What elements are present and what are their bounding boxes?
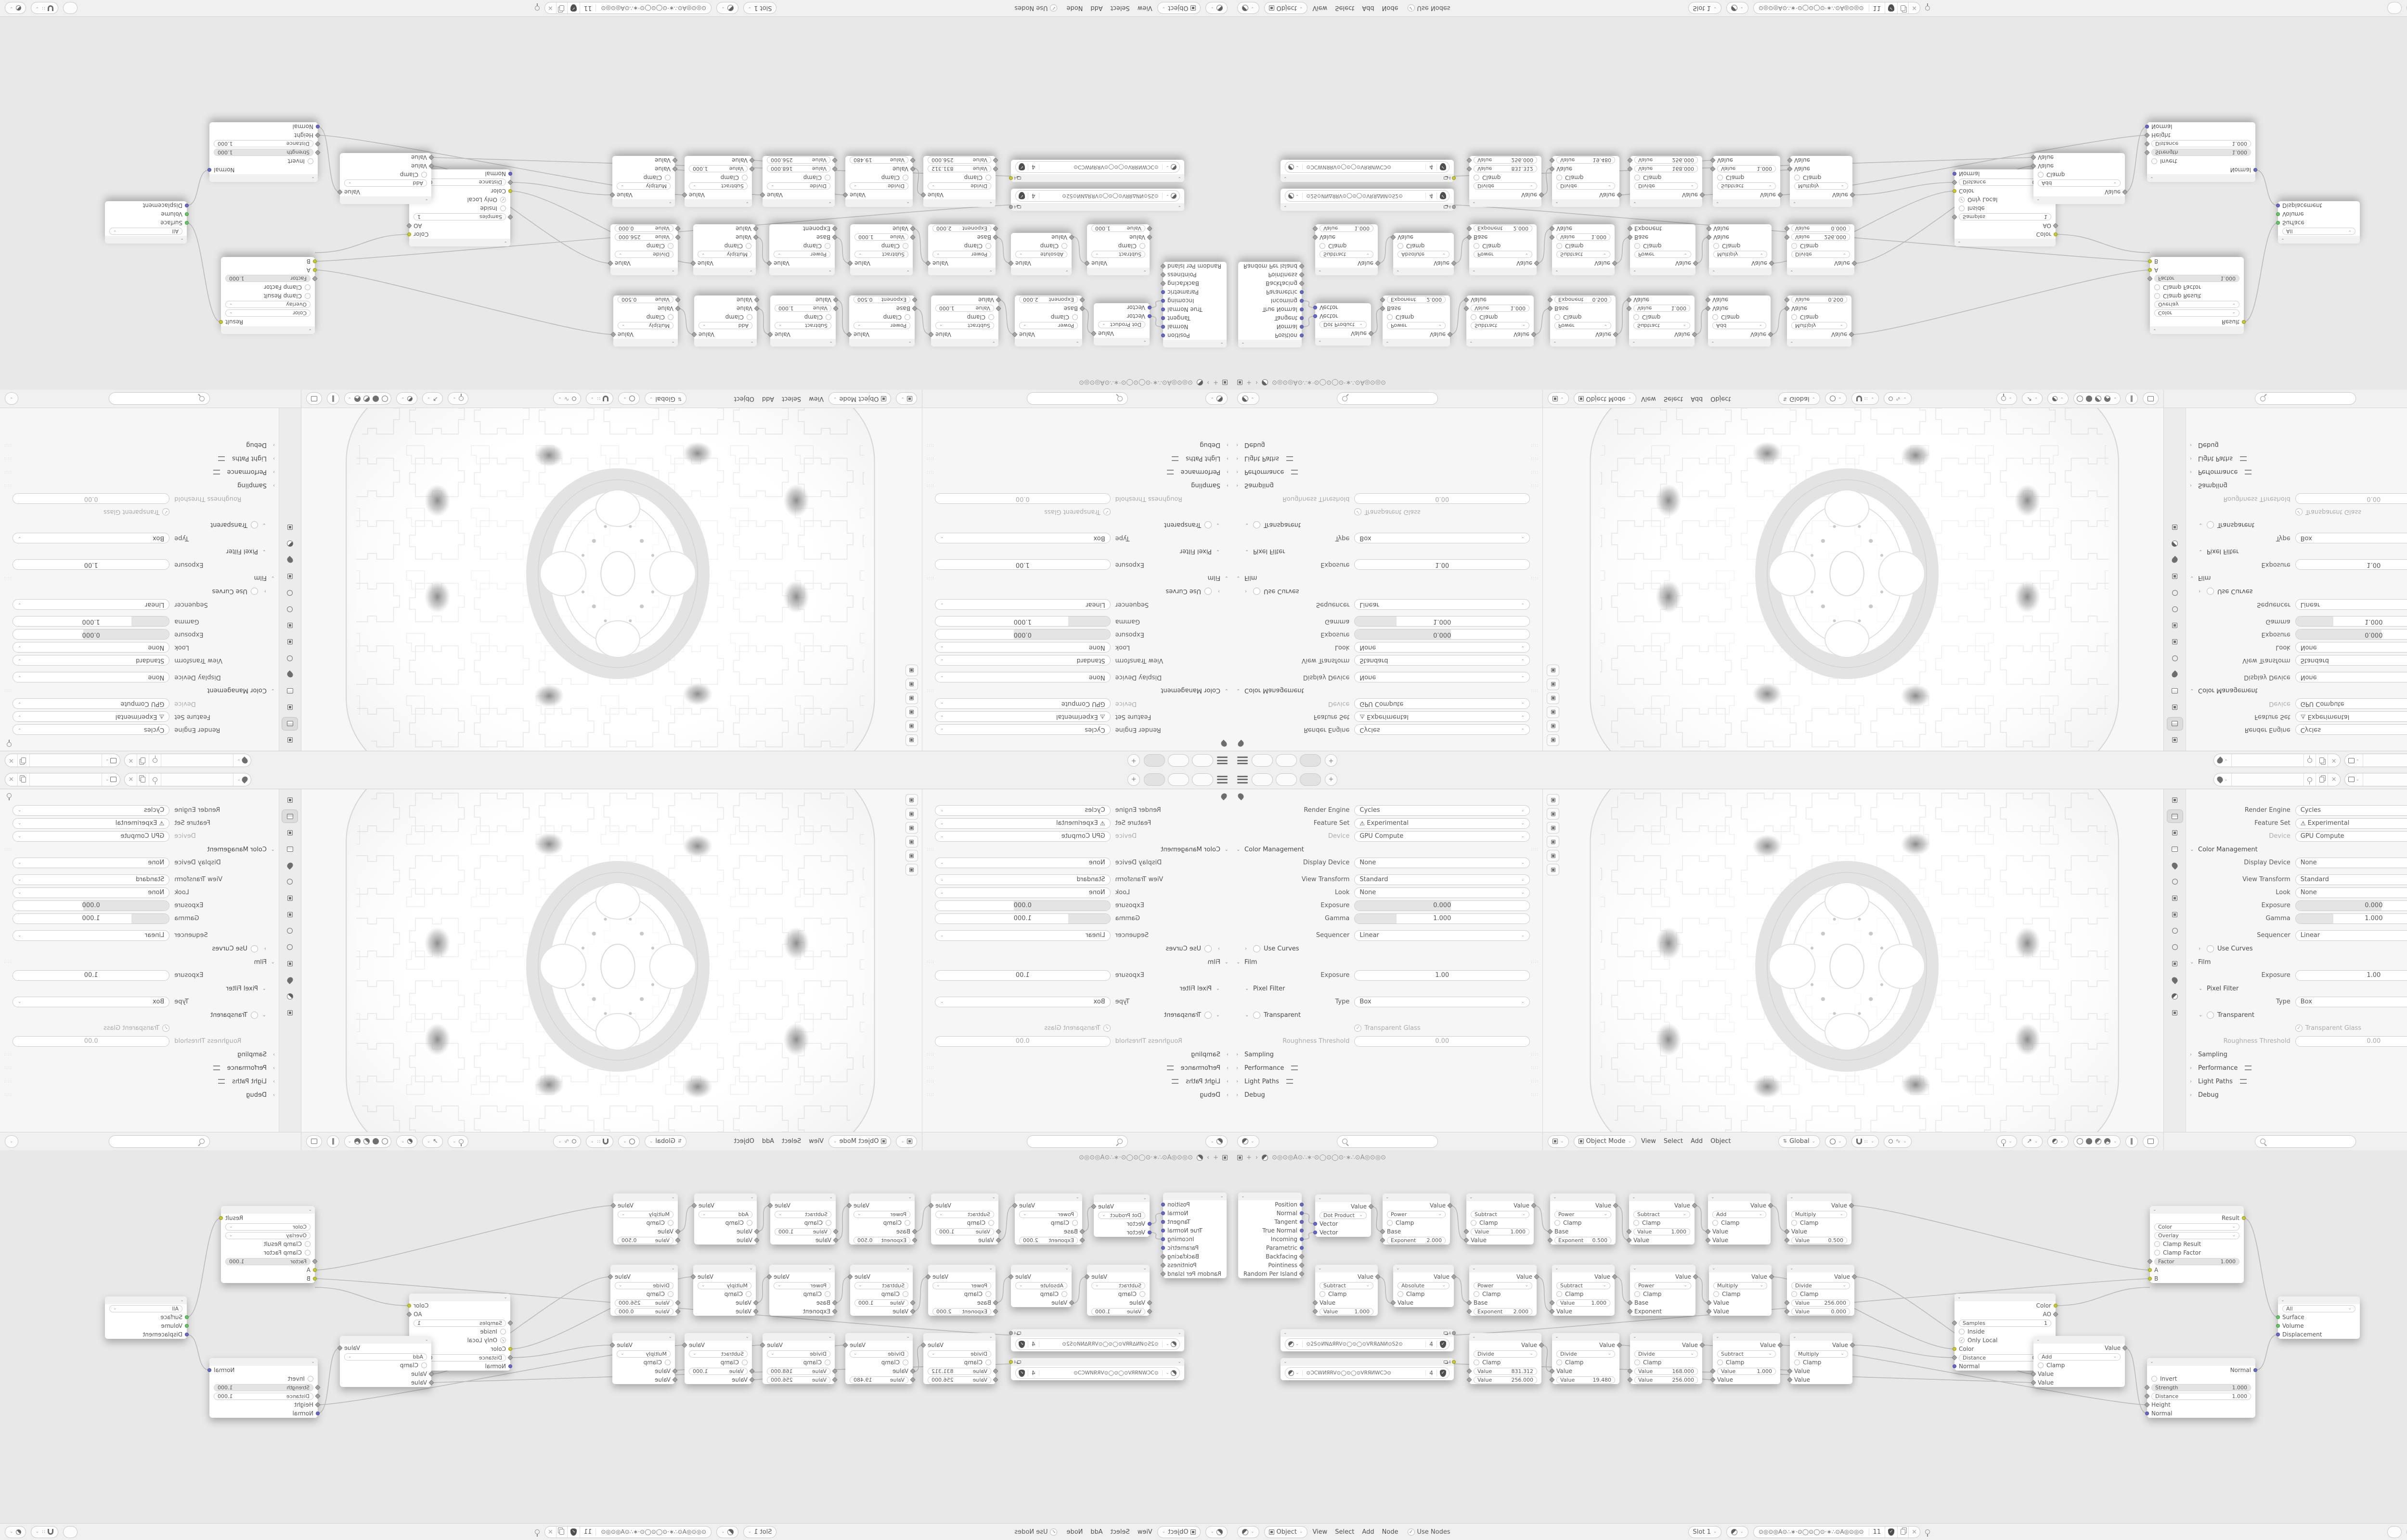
node-header[interactable]: ⌄ bbox=[1383, 1193, 1450, 1201]
number-roughness-threshold[interactable]: 0.00 bbox=[2295, 494, 2407, 504]
node[interactable]: ⌄4⌄⊙2S⊙ИN∆ЯRV⊙◯⊙◯⊙VRЯ∆NИ⊙S2⊙4✓ bbox=[1281, 1329, 1454, 1351]
dropdown-view-transform[interactable]: Standard⌄ bbox=[2295, 655, 2407, 666]
node-value-samples[interactable]: Samples1 bbox=[1954, 213, 2056, 221]
node-header[interactable]: ⌄4 bbox=[1281, 1329, 1454, 1337]
node-value-exponent[interactable]: Exponent0.500 bbox=[849, 1236, 915, 1245]
rendered-shading-icon[interactable] bbox=[2104, 1138, 2110, 1144]
dropdown-view-transform[interactable]: Standard⌄ bbox=[935, 655, 1111, 666]
panel-header-debug[interactable]: ›Debug:::: bbox=[1232, 438, 1542, 452]
dropdown-display-device[interactable]: None⌄ bbox=[13, 858, 169, 868]
node[interactable]: ⌄ValuePower⌄ClampBaseExponent2.000 bbox=[928, 224, 996, 275]
close-icon[interactable]: × bbox=[128, 757, 133, 764]
tab-constraints[interactable] bbox=[282, 957, 298, 970]
render-view-toggle[interactable] bbox=[2143, 1135, 2159, 1148]
node-header[interactable]: ⌄ bbox=[849, 1193, 915, 1201]
viewport-render[interactable] bbox=[301, 789, 922, 1132]
material-browse-dropdown[interactable]: ⌄ bbox=[1726, 2, 1748, 14]
node[interactable]: ⌄ValuePower⌄ClampBaseExponent2.000 bbox=[928, 1265, 996, 1316]
fake-user-button[interactable]: ✓ bbox=[1437, 191, 1449, 201]
users-count[interactable]: 4 bbox=[1028, 1370, 1039, 1376]
node-value-value[interactable]: Value1.000 bbox=[770, 1227, 836, 1236]
tab-scene[interactable] bbox=[282, 668, 298, 681]
panel-header-light-paths[interactable]: ›Light Paths:::: bbox=[1232, 452, 1542, 465]
node-header[interactable]: ⌄ bbox=[769, 268, 835, 275]
datablock-selector[interactable]: ⌄⊙ƆCWИЯRV⊙◯⊙◯⊙VRЯИWCƆ⊙4✓ bbox=[1011, 160, 1184, 174]
checkbox[interactable] bbox=[2207, 588, 2214, 595]
checkbox[interactable] bbox=[251, 945, 258, 952]
checkbox[interactable] bbox=[1253, 945, 1260, 952]
snap-toggle[interactable] bbox=[63, 1526, 78, 1538]
dropdown-sequencer[interactable]: Linear⌄ bbox=[13, 600, 169, 610]
node-value-value[interactable]: Value0.500 bbox=[613, 1236, 678, 1245]
tool-move-icon[interactable] bbox=[906, 706, 918, 718]
node[interactable]: ⌄ValueDivide⌄ClampValue168.000Value256.0… bbox=[1630, 1333, 1702, 1384]
node[interactable]: ⌄ValueDivide⌄ClampValue256.000Value0.000 bbox=[1787, 224, 1854, 275]
node[interactable]: ⌄ValueAdd⌄ClampValueValue bbox=[694, 295, 757, 346]
material-name-field[interactable]: ⊙◎⊙◎A⊙∴∗·⊙◯⊙◯⊙·∗∴⊙A◎⊙◎⊙ 11 ✓ × bbox=[544, 1526, 712, 1538]
tab-modifiers[interactable] bbox=[2167, 619, 2183, 632]
node-operation-dropdown[interactable]: Subtract⌄ bbox=[1091, 1282, 1145, 1289]
node-value-value[interactable]: Value256.000 bbox=[923, 156, 996, 165]
node[interactable]: ⌄NormalInvertStrength1.000Distance1.000H… bbox=[2147, 1358, 2255, 1418]
dropdown-sequencer[interactable]: Linear⌄ bbox=[13, 930, 169, 941]
panel-header-pixel-filter[interactable]: ⌄Pixel Filter bbox=[1232, 982, 1542, 995]
node-header[interactable]: ⌄ bbox=[2147, 174, 2255, 182]
new-material-button[interactable] bbox=[556, 3, 568, 14]
node-checkbox-inside[interactable]: Inside bbox=[1954, 1327, 2056, 1336]
node-header[interactable]: ⌄ bbox=[340, 1336, 431, 1344]
dropdown-type[interactable]: Box⌄ bbox=[1354, 997, 1530, 1007]
node-operation-dropdown[interactable]: Add⌄ bbox=[2038, 180, 2121, 187]
node-operation-dropdown[interactable]: Divide⌄ bbox=[1791, 251, 1850, 258]
dropdown-display-device[interactable]: None⌄ bbox=[13, 672, 169, 683]
node[interactable]: ⌄ValueDivide⌄ClampValueValue19.480 bbox=[1552, 156, 1619, 207]
panel-header-pixel-filter[interactable]: ⌄Pixel Filter bbox=[0, 545, 279, 558]
node-operation-dropdown[interactable]: Power⌄ bbox=[1474, 251, 1532, 258]
number-roughness-threshold[interactable]: 0.00 bbox=[935, 1036, 1111, 1047]
tab-particles[interactable] bbox=[282, 603, 298, 616]
node-header[interactable]: ⌄ bbox=[1708, 339, 1771, 346]
shader-type-dropdown[interactable]: Object⌄ bbox=[1157, 2, 1201, 14]
checkbox[interactable]: ✓ bbox=[1103, 1025, 1111, 1032]
tab-render[interactable] bbox=[2167, 717, 2183, 731]
node-header[interactable]: ⌄4 bbox=[1011, 174, 1184, 182]
panel-menu-icon[interactable] bbox=[1286, 456, 1293, 461]
workspace-tab[interactable] bbox=[1276, 755, 1297, 767]
node[interactable]: ⌄All⌄SurfaceVolumeDisplacement bbox=[2278, 201, 2360, 244]
node-operation-dropdown[interactable]: Subtract⌄ bbox=[1556, 1282, 1610, 1289]
tab-world[interactable] bbox=[282, 652, 298, 665]
node-operation-dropdown[interactable]: Power⌄ bbox=[1634, 1282, 1691, 1289]
tab-world[interactable] bbox=[2167, 652, 2183, 665]
number-roughness-threshold[interactable]: 0.00 bbox=[1354, 1036, 1530, 1047]
material-name-field[interactable]: ⊙◎⊙◎A⊙∴∗·⊙◯⊙◯⊙·∗∴⊙A◎⊙◎⊙ 11 ✓ × bbox=[1753, 2, 1920, 14]
dropdown-look[interactable]: None⌄ bbox=[935, 887, 1111, 898]
pin-icon[interactable] bbox=[2307, 758, 2312, 763]
node-operation-dropdown[interactable]: Color⌄ bbox=[225, 310, 311, 317]
node-header[interactable]: ⌄ bbox=[2150, 326, 2244, 334]
dropdown-render-engine[interactable]: Cycles⌄ bbox=[935, 725, 1111, 735]
node-value-value[interactable]: Value168.000 bbox=[763, 165, 835, 173]
scene-selector[interactable]: ⌄ × bbox=[124, 754, 251, 768]
node-header[interactable]: ⌄ bbox=[209, 174, 318, 182]
dropdown-type[interactable]: Box⌄ bbox=[935, 997, 1111, 1007]
node-header[interactable]: ⌄ bbox=[1094, 1194, 1150, 1202]
panel-header-debug[interactable]: ›Debug:::: bbox=[922, 1088, 1232, 1102]
node-header[interactable]: ⌄ bbox=[931, 339, 998, 346]
node[interactable]: ⌄ValueDivide⌄ClampValue831.312Value256.0… bbox=[923, 156, 996, 207]
panel-header-performance[interactable]: ›Performance:::: bbox=[1232, 465, 1542, 479]
node-operation-dropdown[interactable]: Power⌄ bbox=[932, 251, 991, 258]
node-operation-dropdown[interactable]: Multiply⌄ bbox=[698, 1282, 751, 1289]
editor-type-button[interactable]: ⌄ bbox=[1237, 2, 1259, 14]
node-operation-dropdown[interactable]: Subtract⌄ bbox=[1633, 1211, 1690, 1218]
node-header[interactable]: ⌄ bbox=[105, 1296, 187, 1304]
snap-toggle[interactable] bbox=[63, 2, 78, 14]
node-operation-dropdown[interactable]: Add⌄ bbox=[2038, 1353, 2121, 1360]
node-header[interactable]: ⌄ bbox=[2147, 1358, 2255, 1366]
node-checkbox-clamp[interactable]: Clamp bbox=[931, 1219, 998, 1227]
panel-menu-icon[interactable] bbox=[218, 456, 225, 461]
node-value-value[interactable]: Value1.000 bbox=[1552, 233, 1615, 242]
snapping-toggle[interactable]: ::⌄ bbox=[1851, 393, 1879, 405]
slider-gamma[interactable]: 1.000 bbox=[1354, 616, 1530, 627]
shading-mode-group[interactable]: ⌄ bbox=[345, 1135, 392, 1148]
node-value-exponent[interactable]: Exponent2.000 bbox=[928, 1307, 996, 1316]
users-count[interactable]: 4 bbox=[1426, 192, 1437, 199]
node-header[interactable]: ⌄ bbox=[105, 236, 187, 244]
dropdown-display-device[interactable]: None⌄ bbox=[1354, 672, 1530, 683]
material-shading-icon[interactable] bbox=[2095, 396, 2101, 402]
node-header[interactable]: ⌄ bbox=[1629, 339, 1695, 346]
view-layer-name-field[interactable] bbox=[29, 755, 102, 767]
node-checkbox-clamp[interactable]: Clamp bbox=[1550, 1219, 1616, 1227]
node-operation-dropdown[interactable]: Subtract⌄ bbox=[1320, 251, 1373, 258]
node[interactable]: ⌄ValueSubtract⌄ClampValue1.000Value bbox=[850, 1265, 913, 1316]
copy-icon[interactable] bbox=[21, 777, 26, 783]
node-checkbox-clamp[interactable]: Clamp bbox=[612, 1358, 675, 1367]
material-browse-dropdown[interactable]: ⌄ bbox=[1726, 1526, 1748, 1538]
node[interactable]: ⌄ValuePower⌄ClampBaseExponent2.000 bbox=[1383, 1193, 1450, 1245]
node-checkbox-clamp[interactable]: Clamp bbox=[1393, 1290, 1454, 1298]
slider-gamma[interactable]: 1.000 bbox=[935, 616, 1111, 627]
tab-tool[interactable] bbox=[282, 793, 298, 807]
node-checkbox-clamp[interactable]: Clamp bbox=[763, 173, 835, 182]
node[interactable]: ⌄ValuePower⌄ClampBaseExponent0.500 bbox=[1550, 295, 1616, 346]
tab-scene[interactable] bbox=[282, 859, 298, 872]
xray-toggle[interactable]: ⌄ bbox=[396, 393, 417, 405]
menu-view[interactable]: View bbox=[1312, 1528, 1327, 1536]
node[interactable]: ⌄ValueSubtract⌄ClampValue1.000Value bbox=[1552, 1265, 1615, 1316]
node-header[interactable]: ⌄ bbox=[610, 1265, 678, 1272]
tool-cursor-icon[interactable] bbox=[1547, 720, 1559, 732]
workspace-tab[interactable] bbox=[1192, 773, 1213, 786]
editor-type-button[interactable]: ⌄ bbox=[1205, 1526, 1228, 1538]
snap-target-dropdown[interactable]: ⌄ bbox=[618, 1135, 640, 1148]
panel-header-transparent[interactable]: ⌄Transparent bbox=[1232, 518, 1542, 532]
node-operation-dropdown[interactable]: All⌄ bbox=[2282, 228, 2355, 235]
dropdown-type[interactable]: Box⌄ bbox=[13, 533, 169, 544]
users-count[interactable]: 4 bbox=[1028, 192, 1039, 199]
tab-render[interactable] bbox=[282, 809, 298, 823]
material-shading-icon[interactable] bbox=[2095, 1138, 2101, 1144]
pin-icon[interactable] bbox=[535, 6, 540, 11]
number-roughness-threshold[interactable]: 0.00 bbox=[13, 1036, 169, 1047]
menu-add[interactable]: Add bbox=[762, 1138, 774, 1145]
node-header[interactable]: ⌄ bbox=[850, 268, 913, 275]
node[interactable]: ⌄PositionNormalTangentTrue NormalIncomin… bbox=[1238, 262, 1302, 347]
material-shading-icon[interactable] bbox=[363, 1138, 370, 1144]
node-checkbox-clamp[interactable]: Clamp bbox=[1629, 313, 1695, 321]
checkbox[interactable] bbox=[1253, 1012, 1260, 1019]
node-checkbox-clamp[interactable]: Clamp bbox=[2033, 170, 2125, 179]
node[interactable]: ⌄ValuePower⌄ClampBaseExponent2.000 bbox=[1383, 295, 1450, 346]
slider-exposure[interactable]: 0.000 bbox=[2295, 900, 2407, 911]
node-header[interactable]: ⌄ bbox=[685, 199, 752, 207]
menu-view[interactable]: View bbox=[1138, 5, 1152, 12]
node-value-samples[interactable]: Samples1 bbox=[409, 1319, 510, 1327]
node[interactable]: ⌄ValueAdd⌄ClampValueValue bbox=[340, 153, 431, 204]
node-header[interactable]: ⌄ bbox=[1790, 199, 1852, 207]
viewport-render[interactable] bbox=[1543, 408, 2163, 751]
node-header[interactable]: ⌄ bbox=[763, 199, 835, 207]
view-layer-selector[interactable]: ⌄ × bbox=[5, 773, 120, 786]
editor-type-button[interactable]: ⌄ bbox=[1548, 393, 1569, 405]
scene-name-field[interactable] bbox=[2232, 773, 2304, 786]
node[interactable]: ⌄ValueDivide⌄ClampValue168.000Value256.0… bbox=[763, 1333, 835, 1384]
panel-header-color-management[interactable]: ⌄Color Management:::: bbox=[2186, 684, 2407, 697]
node-header[interactable]: ⌄ bbox=[1713, 1333, 1780, 1341]
node[interactable]: ⌄ValueMultiply⌄ClampValueValue bbox=[1790, 1333, 1852, 1384]
shading-mode-group[interactable]: ⌄ bbox=[2073, 1135, 2121, 1148]
node[interactable]: ⌄ValueSubtract⌄ClampValue1.000Value bbox=[931, 295, 998, 346]
node-checkbox-clamp[interactable]: Clamp bbox=[693, 1290, 756, 1298]
transform-orientation-dropdown[interactable]: ⇅Global⌄ bbox=[645, 393, 686, 405]
node-header[interactable]: ⌄ bbox=[1630, 268, 1695, 275]
transform-orientation-dropdown[interactable]: ⇅Global⌄ bbox=[645, 1135, 686, 1148]
node-value-strength[interactable]: Strength1.000 bbox=[2147, 148, 2255, 157]
node-canvas[interactable]: ⌄PositionNormalTangentTrue NormalIncomin… bbox=[0, 17, 1232, 390]
menu-select[interactable]: Select bbox=[1335, 1528, 1354, 1536]
node-header[interactable]: ⌄ bbox=[1709, 268, 1772, 275]
node-operation-dropdown[interactable]: Power⌄ bbox=[932, 1282, 991, 1289]
node-value-value[interactable]: Value0.000 bbox=[610, 224, 678, 233]
slider-gamma[interactable]: 1.000 bbox=[13, 913, 169, 924]
node[interactable]: ⌄ValueMultiply⌄ClampValueValue0.500 bbox=[1787, 1193, 1851, 1245]
menu-view[interactable]: View bbox=[1312, 5, 1327, 12]
node-operation-dropdown[interactable]: Subtract⌄ bbox=[1091, 251, 1145, 258]
tab-object[interactable] bbox=[2167, 635, 2183, 649]
workspace-tab[interactable] bbox=[1144, 773, 1165, 786]
node-checkbox-clamp[interactable]: Clamp bbox=[1552, 173, 1619, 182]
node-header[interactable]: ⌄ bbox=[1787, 268, 1854, 275]
dropdown-display-device[interactable]: None⌄ bbox=[935, 672, 1111, 683]
node-header[interactable]: ⌄ bbox=[769, 1265, 835, 1272]
node-header[interactable]: ⌄ bbox=[685, 1333, 752, 1341]
node-operation-dropdown[interactable]: Power⌄ bbox=[1019, 322, 1078, 330]
node-header[interactable]: ⌄ bbox=[1315, 1194, 1371, 1202]
node-value-value[interactable]: Value1.000 bbox=[1087, 1307, 1150, 1316]
node-checkbox-clamp[interactable]: Clamp bbox=[610, 1290, 678, 1298]
node-header[interactable]: ⌄ bbox=[1630, 1333, 1702, 1341]
node[interactable]: ⌄ValueMultiply⌄ClampValueValue bbox=[612, 1333, 675, 1384]
panel-header-transparent[interactable]: ⌄Transparent bbox=[0, 1008, 279, 1022]
menu-view[interactable]: View bbox=[1641, 1138, 1656, 1145]
node-header[interactable]: ⌄ bbox=[1630, 1265, 1695, 1272]
node-checkbox-clamp[interactable]: Clamp bbox=[613, 313, 678, 321]
node-header[interactable]: ⌄ bbox=[1552, 1265, 1615, 1272]
node-operation-dropdown[interactable]: Divide⌄ bbox=[928, 1350, 991, 1358]
node[interactable]: ⌄ValueSubtract⌄ClampValue1.000Value bbox=[770, 1193, 836, 1245]
solid-shading-icon[interactable] bbox=[373, 1138, 379, 1144]
node-checkbox-clamp-factor[interactable]: Clamp Factor bbox=[2150, 1248, 2244, 1257]
node-header[interactable]: ⌄ bbox=[845, 199, 913, 207]
node-value-distance[interactable]: Distance1.000 bbox=[2147, 140, 2255, 148]
node-header[interactable]: ⌄ bbox=[931, 1193, 998, 1201]
node-checkbox-clamp[interactable]: Clamp bbox=[845, 173, 913, 182]
panel-header-performance[interactable]: ›Performance:::: bbox=[1232, 1061, 1542, 1075]
node-operation-dropdown[interactable]: Divide⌄ bbox=[850, 1350, 908, 1358]
unlink-material-button[interactable]: × bbox=[545, 3, 556, 14]
pin-icon[interactable] bbox=[153, 758, 157, 763]
node-operation-dropdown[interactable]: Subtract⌄ bbox=[1320, 1282, 1373, 1289]
tool-cursor-icon[interactable] bbox=[1547, 808, 1559, 820]
tab-constraints[interactable] bbox=[2167, 957, 2183, 970]
node[interactable]: ⌄4⌄⊙ƆCWИЯRV⊙◯⊙◯⊙VRЯИWCƆ⊙4✓ bbox=[1011, 160, 1184, 182]
node-value-value[interactable]: Value19.480 bbox=[1552, 1375, 1619, 1384]
material-browse-dropdown[interactable]: ⌄ bbox=[716, 2, 738, 14]
node-header[interactable]: ⌄4 bbox=[1281, 174, 1454, 182]
dropdown-display-device[interactable]: None⌄ bbox=[1354, 858, 1530, 868]
panel-header-sampling[interactable]: ›Sampling:::: bbox=[1232, 479, 1542, 492]
node-checkbox-clamp[interactable]: Clamp bbox=[1393, 242, 1454, 250]
node-value-value[interactable]: Value19.480 bbox=[1552, 156, 1619, 165]
node-operation-dropdown[interactable]: Divide⌄ bbox=[767, 183, 830, 190]
node-header[interactable]: ⌄4 bbox=[1011, 203, 1184, 211]
tool-scale-icon[interactable] bbox=[1547, 679, 1559, 690]
panel-header-transparent[interactable]: ⌄Transparent bbox=[922, 518, 1232, 532]
slot-dropdown[interactable]: Slot 1⌄ bbox=[1688, 1526, 1722, 1538]
dropdown-display-device[interactable]: None⌄ bbox=[2295, 858, 2407, 868]
dropdown-look[interactable]: None⌄ bbox=[2295, 887, 2407, 898]
datablock-selector[interactable]: ⌄⊙ƆCWИЯRV⊙◯⊙◯⊙VRЯИWCƆ⊙4✓ bbox=[1011, 1366, 1184, 1380]
unlink-material-button[interactable]: × bbox=[1908, 1527, 1920, 1538]
number-exposure[interactable]: 1.00 bbox=[13, 970, 169, 981]
node-value-samples[interactable]: Samples1 bbox=[409, 213, 510, 221]
snap-target-dropdown[interactable]: ⌄ bbox=[1825, 1135, 1847, 1148]
node-header[interactable]: ⌄ bbox=[923, 1333, 996, 1341]
node-operation-dropdown[interactable]: Divide⌄ bbox=[1556, 183, 1615, 190]
node-checkbox-clamp[interactable]: Clamp bbox=[1015, 313, 1082, 321]
panel-header-film[interactable]: ⌄Film:::: bbox=[2186, 571, 2407, 585]
node-operation-dropdown[interactable]: Add⌄ bbox=[1712, 322, 1766, 330]
node-operation-dropdown[interactable]: Power⌄ bbox=[774, 1282, 830, 1289]
node-checkbox-clamp[interactable]: Clamp bbox=[1011, 242, 1072, 250]
node-value-distance[interactable]: Distance1.000 bbox=[209, 140, 318, 148]
node[interactable]: ⌄ValueSubtract⌄ClampValue1.000Value bbox=[931, 1193, 998, 1245]
node[interactable]: ⌄ValueAbsolute⌄ClampValue bbox=[1011, 1265, 1072, 1307]
dropdown-device[interactable]: GPU Compute⌄ bbox=[1354, 831, 1530, 842]
node-checkbox-clamp[interactable]: Clamp bbox=[1787, 1290, 1854, 1298]
node-checkbox-clamp[interactable]: Clamp bbox=[1469, 242, 1537, 250]
dropdown-device[interactable]: GPU Compute⌄ bbox=[2295, 831, 2407, 842]
node-value-value[interactable]: Value1.000 bbox=[1466, 304, 1534, 313]
node-operation-dropdown[interactable]: Multiply⌄ bbox=[1791, 322, 1847, 330]
node-header[interactable]: ⌄ bbox=[1552, 199, 1619, 207]
material-users-count[interactable]: 11 bbox=[1869, 1528, 1885, 1536]
checkbox[interactable] bbox=[2207, 945, 2214, 952]
node-value-value[interactable]: Value0.000 bbox=[610, 1307, 678, 1316]
node[interactable]: ⌄ValueSubtract⌄ClampValue1.000Value bbox=[685, 1333, 752, 1384]
node-header[interactable]: ⌄ bbox=[694, 339, 757, 346]
node-operation-dropdown[interactable]: Subtract⌄ bbox=[775, 1211, 831, 1218]
dropdown-type[interactable]: Box⌄ bbox=[2295, 533, 2407, 544]
dropdown-look[interactable]: None⌄ bbox=[13, 887, 169, 898]
tab-modifiers[interactable] bbox=[282, 908, 298, 921]
node-value-value[interactable]: Value19.480 bbox=[845, 156, 913, 165]
node-value-value[interactable]: Value0.500 bbox=[1787, 295, 1851, 304]
node-value-factor[interactable]: Factor1.000 bbox=[221, 1257, 315, 1266]
tab-physics[interactable] bbox=[282, 940, 298, 954]
transform-orientation-dropdown[interactable]: ⇅Global⌄ bbox=[1778, 393, 1820, 405]
node[interactable]: ⌄ValuePower⌄ClampBaseExponent2.000 bbox=[1015, 1193, 1082, 1245]
node-header[interactable]: ⌄ bbox=[923, 199, 996, 207]
number-roughness-threshold[interactable]: 0.00 bbox=[935, 494, 1111, 504]
node-value-exponent[interactable]: Exponent2.000 bbox=[1015, 295, 1082, 304]
node-checkbox-clamp[interactable]: Clamp bbox=[1708, 313, 1771, 321]
node-checkbox-clamp[interactable]: Clamp bbox=[1708, 1219, 1771, 1227]
node-header[interactable]: ⌄ bbox=[1713, 199, 1780, 207]
tab-data[interactable] bbox=[2167, 553, 2183, 567]
node-header[interactable]: ⌄ bbox=[1238, 340, 1302, 347]
node-canvas[interactable]: ⌄PositionNormalTangentTrue NormalIncomin… bbox=[0, 1150, 1232, 1523]
node-operation-dropdown[interactable]: Divide⌄ bbox=[1474, 183, 1537, 190]
datablock-name[interactable]: ⊙2S⊙ИN∆ЯRV⊙◯⊙◯⊙VRЯ∆NИ⊙S2⊙ bbox=[1302, 1341, 1426, 1347]
snap-toggle[interactable] bbox=[2387, 1526, 2402, 1538]
checkbox[interactable] bbox=[2207, 1012, 2214, 1019]
node-value-value[interactable]: Value1.000 bbox=[850, 233, 913, 242]
node-canvas[interactable]: ⌄PositionNormalTangentTrue NormalIncomin… bbox=[1232, 1150, 2407, 1523]
node-value-exponent[interactable]: Exponent2.000 bbox=[1383, 1236, 1450, 1245]
node-header[interactable]: ⌄ bbox=[612, 199, 675, 207]
slider-exposure[interactable]: 0.000 bbox=[13, 900, 169, 911]
node-checkbox-clamp[interactable]: Clamp bbox=[1713, 173, 1780, 182]
node[interactable]: ⌄ValueDivide⌄ClampValue168.000Value256.0… bbox=[1630, 156, 1702, 207]
menu-object[interactable]: Object bbox=[734, 395, 754, 402]
node-operation-dropdown[interactable]: Add⌄ bbox=[1712, 1211, 1766, 1218]
node-header[interactable]: ⌄ bbox=[221, 1206, 315, 1214]
rendered-shading-icon[interactable] bbox=[354, 396, 361, 402]
node[interactable]: ⌄ValuePower⌄ClampBaseExponent0.500 bbox=[849, 1193, 915, 1245]
material-users-count[interactable]: 11 bbox=[580, 5, 596, 12]
workspace-tab[interactable] bbox=[1300, 755, 1321, 767]
tab-output[interactable] bbox=[282, 826, 298, 839]
node-value-distance[interactable]: Distance1.000 bbox=[209, 1392, 318, 1400]
node-checkbox-clamp[interactable]: Clamp bbox=[850, 1290, 913, 1298]
node-checkbox-invert[interactable]: Invert bbox=[2147, 157, 2255, 166]
panel-header-performance[interactable]: ›Performance:::: bbox=[922, 1061, 1232, 1075]
node-checkbox-clamp[interactable]: Clamp bbox=[1011, 1290, 1072, 1298]
panel-header-light-paths[interactable]: ›Light Paths:::: bbox=[0, 452, 279, 465]
node[interactable]: ⌄PositionNormalTangentTrue NormalIncomin… bbox=[1238, 1193, 1302, 1278]
slider-exposure[interactable]: 0.000 bbox=[1354, 629, 1530, 640]
copy-icon[interactable] bbox=[141, 777, 145, 783]
node-checkbox-clamp[interactable]: Clamp bbox=[1383, 1219, 1450, 1227]
node[interactable]: ⌄ValueAdd⌄ClampValueValue bbox=[694, 1193, 757, 1245]
datablock-selector[interactable]: ⌄⊙2S⊙ИN∆ЯRV⊙◯⊙◯⊙VRЯ∆NИ⊙S2⊙4✓ bbox=[1011, 1337, 1184, 1351]
node[interactable]: ⌄ValueDivide⌄ClampValue256.000Value0.000 bbox=[1787, 1265, 1854, 1316]
node[interactable]: ⌄ValueDivide⌄ClampValue831.312Value256.0… bbox=[1469, 156, 1541, 207]
